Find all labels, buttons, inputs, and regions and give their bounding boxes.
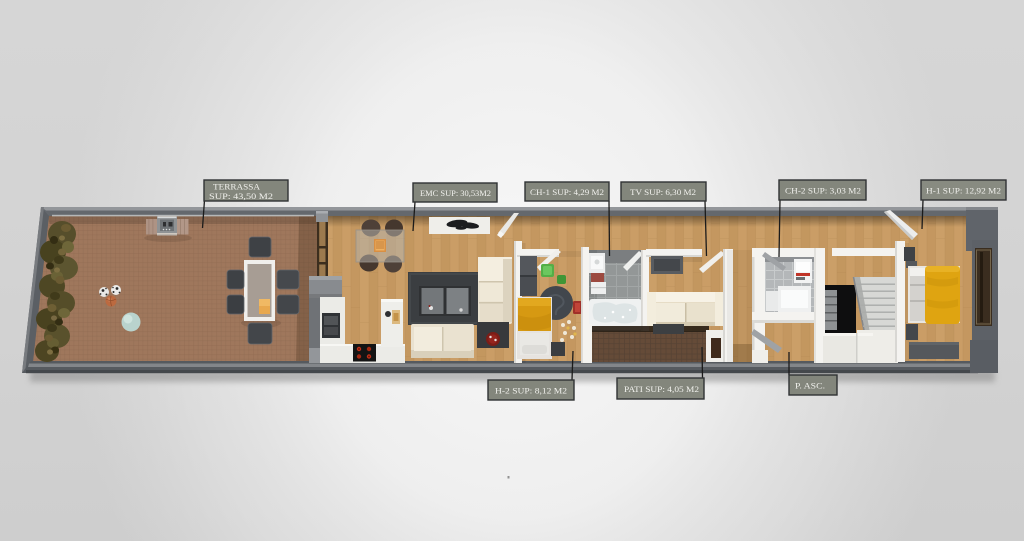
svg-text:CH-1 SUP: 4,29 M2: CH-1 SUP: 4,29 M2 (530, 187, 604, 197)
svg-text:SUP: 43,50 M2: SUP: 43,50 M2 (209, 191, 273, 201)
svg-text:H-2 SUP: 8,12 M2: H-2 SUP: 8,12 M2 (495, 386, 567, 396)
svg-text:TV SUP: 6,30 M2: TV SUP: 6,30 M2 (630, 187, 696, 197)
svg-text:H-1 SUP: 12,92 M2: H-1 SUP: 12,92 M2 (926, 186, 1001, 196)
svg-text:P. ASC.: P. ASC. (795, 381, 825, 391)
svg-text:EMC SUP: 30,53M2: EMC SUP: 30,53M2 (420, 188, 491, 198)
svg-text:PATI SUP: 4,05 M2: PATI SUP: 4,05 M2 (624, 384, 699, 394)
svg-text:CH-2 SUP: 3,03 M2: CH-2 SUP: 3,03 M2 (785, 186, 861, 196)
